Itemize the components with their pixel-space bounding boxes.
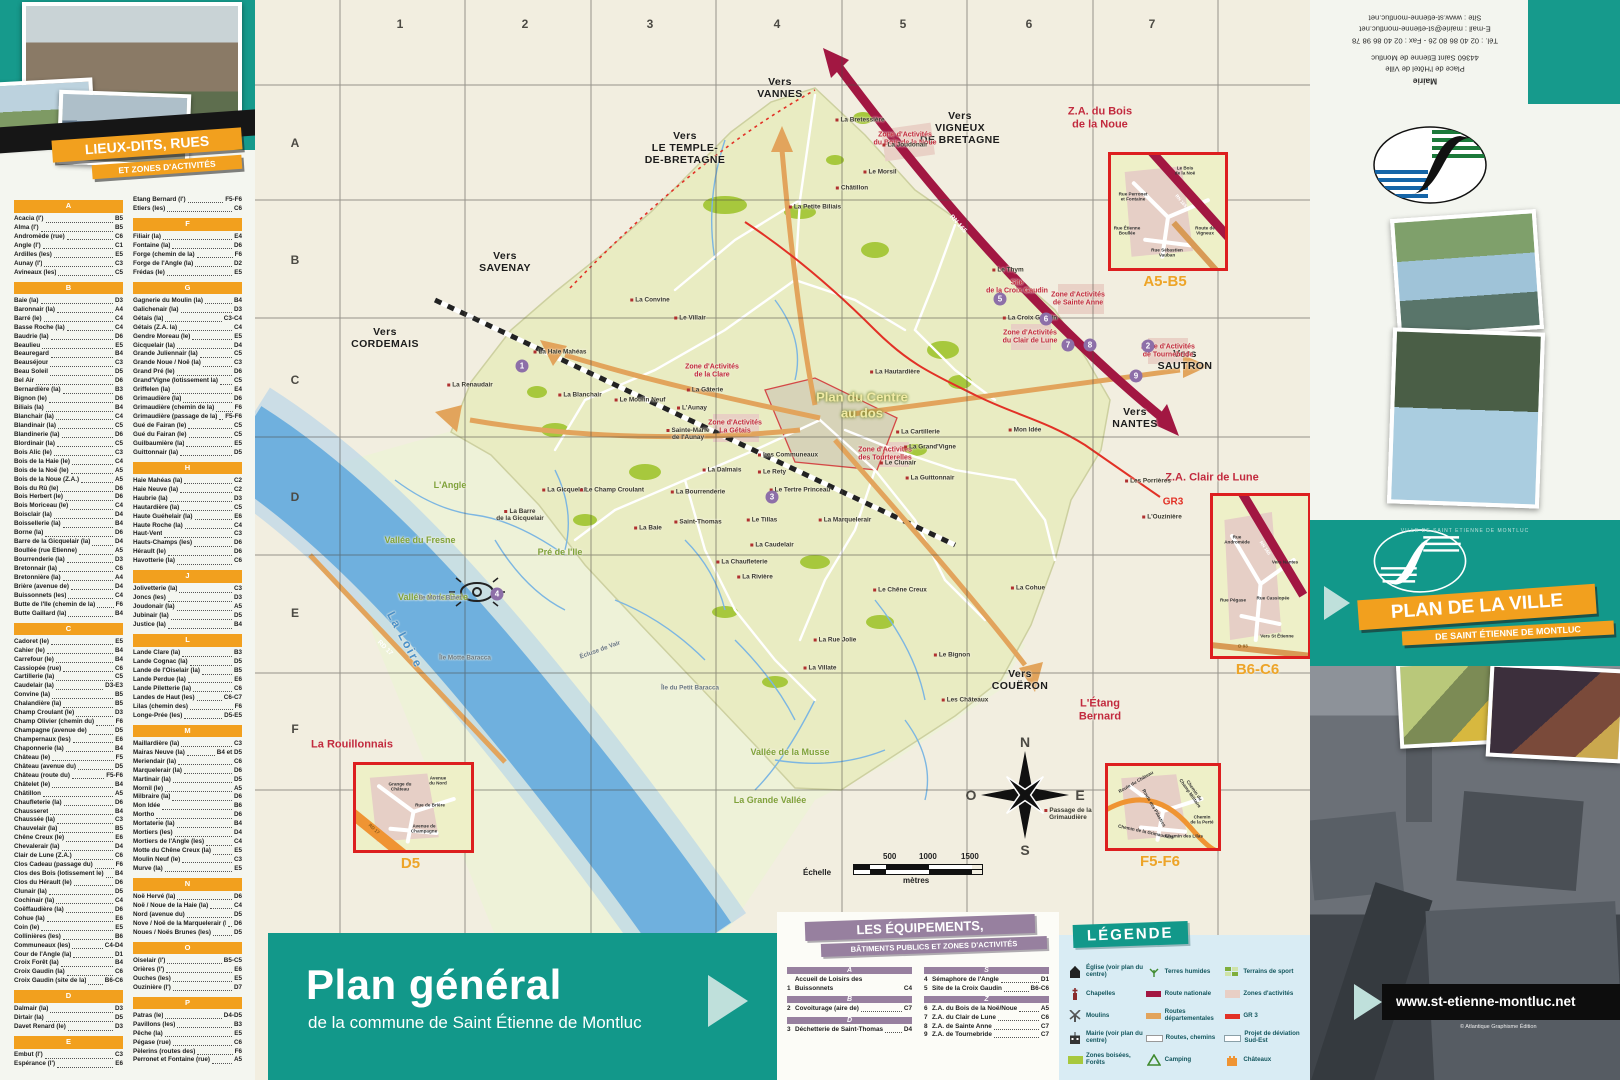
index-entry: Gicquelair (la)D4 (133, 342, 242, 351)
hamlet-label: La Rue Jolie (814, 637, 857, 644)
contact-name: Mairie (1320, 75, 1530, 88)
hamlet-label: Le Tertre Princeau (770, 487, 831, 494)
legende-item: Zones d'activités (1224, 988, 1303, 1000)
hamlet-label: La Haie Mahéas (534, 349, 587, 356)
index-entry: Angle (l')C1 (14, 242, 123, 251)
index-entry: Bel AirD6 (14, 377, 123, 386)
equipement-entry: 4Sémaphore de l'AngleD1 (924, 976, 1049, 985)
index-entry: ChausseretB4 (14, 808, 123, 817)
index-entry: Beau SoleilD5 (14, 368, 123, 377)
index-entry: Chaussée (la)C3 (14, 816, 123, 825)
index-entry: Griffelen (la)E4 (133, 386, 242, 395)
hamlet-label: La Petite Biliais (789, 204, 841, 211)
index-entry: Murve (la)E5 (133, 865, 242, 874)
scale-tick-1500: 1500 (961, 852, 979, 861)
inset-street-label: D 93 (1238, 643, 1248, 648)
index-entry: Château (avenue du)D5 (14, 763, 123, 772)
index-entry: Brière (avenue de)D4 (14, 583, 123, 592)
equipements-section-header: Z (924, 996, 1049, 1003)
index-entry: Étiers (les)C6 (133, 205, 242, 214)
inset-title-label: L'ÉtangBernard (1079, 697, 1121, 722)
inset-title-label: Z.A. du Boisde la Noue (1068, 105, 1132, 130)
index-entry: Pèlerins (routes des)F6 (133, 1048, 242, 1057)
contact-address2: 44360 Saint Etienne de Montluc (1320, 52, 1530, 63)
hamlet-label: La Barrede la Gicquelair (496, 508, 544, 522)
direction-label: VersNANTES (1112, 406, 1158, 430)
index-section-header: L (133, 634, 242, 647)
inset-street-label: Vers St Étienne (1260, 633, 1293, 638)
contact-address1: Place de l'Hôtel de Ville (1320, 64, 1530, 75)
index-entry: Mornil (le)A5 (133, 785, 242, 794)
hamlet-label: La Dalmais (703, 467, 742, 474)
inset-street-label: Avenuedu Nord (429, 776, 447, 787)
index-entry: Lilas (chemin des)F6 (133, 703, 242, 712)
direction-label: VersCORDEMAIS (351, 326, 419, 350)
inset-street-label: Route deVigneux (1195, 226, 1215, 237)
grid-row-label: A (291, 136, 300, 150)
index-entry: Nord (avenue du)D5 (133, 911, 242, 920)
index-entry: Espérance (l')E6 (14, 1060, 123, 1069)
index-entry: Grande Noue / Noë (la)C3 (133, 359, 242, 368)
index-entry: Collinières (les)B6 (14, 933, 123, 942)
index-entry: Clos Cadeau (passage du)F6 (14, 861, 123, 870)
grid-row-label: B (291, 253, 300, 267)
centre-plan-note: Plan du Centreau dos (816, 389, 908, 420)
concert-photo (1486, 666, 1620, 763)
index-entry: Baie (la)D3 (14, 297, 123, 306)
grid-col-label: 5 (900, 17, 907, 31)
index-entry: Cadoret (le)E5 (14, 638, 123, 647)
chapel-icon (1067, 988, 1083, 1000)
equipements-col2: S4Sémaphore de l'AngleD15Site de la Croi… (924, 964, 1049, 1040)
road-number-label: RN 165 (948, 213, 968, 234)
index-entry: Fontaine (la)D6 (133, 242, 242, 251)
zone-activites-label: Zone d'ActivitésLa Gétais (708, 420, 762, 437)
hamlet-label: Le Villair (674, 315, 706, 322)
index-entry: Communeaux (les)C4-D4 (14, 942, 123, 951)
hamlet-label: Mon Idée (1009, 427, 1042, 434)
legende-grid: Église (voir plan du centre)Terres humid… (1067, 961, 1303, 1071)
index-entry: Cassiopée (rue)C6 (14, 665, 123, 674)
direction-label: VersSAVENAY (479, 250, 531, 274)
rn-swatch (1146, 988, 1162, 1000)
inset-street-label: Vers Nantes (1272, 559, 1298, 564)
index-entry: Grande Juliennair (la)C5 (133, 350, 242, 359)
map-labels: 1234567ABCDEFVersVANNESVersLE TEMPLE-DE-… (255, 0, 1310, 935)
index-entry: Barre de la Gicquelair (la)D4 (14, 538, 123, 547)
index-entry: Clos des Bois (lotissement le)B4 (14, 870, 123, 879)
index-entry: Bernardière (la)B3 (14, 386, 123, 395)
title-block: Plan général de la commune de Saint Étie… (268, 933, 777, 1080)
inset-grid-ref: D5 (401, 855, 420, 872)
index-entry: Chevalerair (la)D4 (14, 843, 123, 852)
hamlet-label: Le Rety (758, 469, 786, 476)
hamlet-label: La Villate (804, 665, 837, 672)
legende-item-label: Église (voir plan du centre) (1086, 965, 1146, 979)
hamlet-label: Saint-Thomas (674, 519, 721, 526)
legende-item: Camping (1146, 1054, 1225, 1066)
index-entry: Ouzinière (l')D7 (133, 984, 242, 993)
index-entry: Haie Mahéas (la)C2 (133, 477, 242, 486)
index-section-header: M (133, 725, 242, 738)
inset-street-label: Le Boisde la Noë (1175, 166, 1195, 177)
index-entry: Haubrie (la)D3 (133, 495, 242, 504)
hamlet-label: Le Tillas (747, 517, 777, 524)
index-entry: Haute Roche (la)C4 (133, 522, 242, 531)
inset-street-label: Rue de Brière (415, 802, 445, 807)
index-entry: Oiselair (l')B5-C5 (133, 957, 242, 966)
grid-col-label: 2 (522, 17, 529, 31)
index-entry: Chaponnerie (la)B4 (14, 745, 123, 754)
index-entry: Borne (la)D6 (14, 529, 123, 538)
index-entry: Convine (la)B5 (14, 691, 123, 700)
index-entry: Galichenair (la)D3 (133, 306, 242, 315)
index-entry: Boullée (rue Étienne)A5 (14, 547, 123, 556)
street-index: AAcacia (l')B5Alma (l')B5Andromède (rue)… (14, 196, 242, 1074)
index-entry: Caudelair (la)D3-E3 (14, 682, 123, 691)
inset-street-label: Rue Perronetet Fontaine (1119, 192, 1148, 203)
index-entry: Blandinerie (la)D6 (14, 431, 123, 440)
gr-swatch (1224, 1010, 1240, 1022)
index-entry: Lande Clare (la)B3 (133, 649, 242, 658)
wetland-icon (1146, 966, 1162, 978)
poi-marker: 5 (994, 293, 1007, 306)
equipement-entry: 1Accueil de Loisirs des BuissonnetsC4 (787, 976, 912, 993)
index-entry: Motte du Chêne Creux (la)E5 (133, 847, 242, 856)
index-entry: Avineaux (les)C5 (14, 269, 123, 278)
contact-email: E-mail : mairie@st-etienne-montluc.net (1320, 23, 1530, 34)
index-entry: Guittonnair (la)D5 (133, 449, 242, 458)
index-entry: Butte Gaillard (la)B4 (14, 610, 123, 619)
hamlet-label: Les Porrières (1125, 478, 1171, 485)
index-entry: Mairas Neuve (la)B4 et D5 (133, 749, 242, 758)
legende-title: LÉGENDE (1073, 921, 1188, 948)
index-entry: Cahier (le)B4 (14, 647, 123, 656)
equipement-entry: 6Z.A. du Bois de la Noë/NoueA5 (924, 1005, 1049, 1014)
inset-grid-ref: F5-F6 (1140, 853, 1180, 870)
legende-item-label: Châteaux (1243, 1057, 1271, 1064)
street-index-panel: LIEUX-DITS, RUES ET ZONES D'ACTIVITÉS AA… (0, 0, 255, 1080)
equipement-entry: 3Déchetterie de Saint-ThomasD4 (787, 1026, 912, 1035)
index-entry: Champernaux (les)E6 (14, 736, 123, 745)
index-entry: Gendre Moreau (le)E5 (133, 333, 242, 342)
index-entry: Cochinair (la)C4 (14, 897, 123, 906)
index-entry: Andromède (rue)C6 (14, 233, 123, 242)
title-arrow-icon (708, 975, 748, 1027)
equipements-panel: LES ÉQUIPEMENTS, BÂTIMENTS PUBLICS ET ZO… (777, 912, 1059, 1080)
river-label: La Loire (384, 609, 426, 671)
direction-label: VersCOUËRON (992, 668, 1048, 692)
index-entry: Havotterie (la)C6 (133, 557, 242, 566)
inset-title-label: Z.A. Clair de Lune (1165, 472, 1259, 485)
hamlet-label: La Baie (634, 525, 662, 532)
valley-label: La Grande Vallée (734, 795, 807, 805)
hamlet-label: Passage de laGrimaudière (1044, 807, 1091, 821)
legende-item-label: Moulins (1086, 1013, 1109, 1020)
index-entry: Lande Cognac (la)D5 (133, 658, 242, 667)
index-entry: Ardilles (les)E5 (14, 251, 123, 260)
index-entry: Chauvelair (la)B5 (14, 825, 123, 834)
inset-street-label: Chemin des Lilas (1165, 833, 1203, 838)
index-entry: BeauregardB4 (14, 350, 123, 359)
index-entry: Haut-VentC3 (133, 530, 242, 539)
legende-item: Mairie (voir plan du centre) (1067, 1031, 1146, 1045)
island-label: Île Motte Baracca (439, 655, 491, 662)
index-entry: Baronnair (la)A4 (14, 306, 123, 315)
poi-marker: 1 (516, 360, 529, 373)
river-photo (1390, 209, 1544, 339)
index-section-header: D (14, 990, 123, 1003)
index-entry: Blordinair (la)C5 (14, 440, 123, 449)
legende-item: Terres humides (1146, 966, 1225, 978)
index-entry: Buissonnets (les)C4 (14, 592, 123, 601)
map-leaflet-page: LIEUX-DITS, RUES ET ZONES D'ACTIVITÉS AA… (0, 0, 1620, 1080)
index-entry: Davet Renard (le)D3 (14, 1023, 123, 1032)
index-entry: Mon IdéeB6 (133, 802, 242, 811)
index-entry: Noë / Noue de la Haie (la)C4 (133, 902, 242, 911)
legende-item: Chapelles (1067, 988, 1146, 1000)
index-entry: Chalandière (la)B5 (14, 700, 123, 709)
index-entry: Perronet et Fontaine (rue)A5 (133, 1056, 242, 1065)
church-icon (1067, 966, 1083, 978)
index-entry: Chaufleterie (la)D6 (14, 799, 123, 808)
equipements-banner-line2: BÂTIMENTS PUBLICS ET ZONES D'ACTIVITÉS (850, 939, 1017, 954)
hamlet-label: Le Morsil (863, 169, 896, 176)
index-entry: Bignon (le)D6 (14, 395, 123, 404)
index-entry: Forge (chemin de la)F6 (133, 251, 242, 260)
index-section-header: E (14, 1036, 123, 1049)
legende-item: Route nationale (1146, 988, 1225, 1000)
index-entry: Haie Neuve (la)C2 (133, 486, 242, 495)
hamlet-label: La Marquelerair (819, 517, 872, 524)
index-entry: Croix Forêt (la)B4 (14, 959, 123, 968)
index-entry: Étang Bernard (l')F5-F6 (133, 196, 242, 205)
index-entry: Hauts-Champs (les)D6 (133, 539, 242, 548)
legende-item-label: Routes départementales (1165, 1009, 1225, 1023)
deviation-swatch (1224, 1032, 1241, 1044)
index-entry: Bois de la Haie (le)C4 (14, 458, 123, 467)
rd-swatch (1146, 1010, 1162, 1022)
index-entry: Ouches (les)E5 (133, 975, 242, 984)
index-entry: Justice (la)B4 (133, 621, 242, 630)
map-title: Plan général (306, 961, 777, 1009)
index-entry: Dirtair (la)D5 (14, 1014, 123, 1023)
hamlet-label: Le Chêne Creux (873, 587, 927, 594)
index-section-header: J (133, 570, 242, 583)
valley-label: Vallée du Fresne (384, 535, 455, 545)
inset-street-label: Rue SébastienVauban (1151, 248, 1183, 259)
index-entry: Coin (le)E5 (14, 924, 123, 933)
sport-icon (1224, 966, 1240, 978)
hamlet-label: La Rivière (737, 574, 773, 581)
index-entry: Baudrie (la)D6 (14, 333, 123, 342)
index-entry: Forge de l'Angle (la)D2 (133, 260, 242, 269)
index-entry: Noë Hervé (la)D6 (133, 893, 242, 902)
index-entry: Château (route du)F5-F6 (14, 772, 123, 781)
zone-activites-label: Zone d'Activitésdu Clair de Lune (1003, 330, 1058, 347)
index-entry: Bois Alic (le)C3 (14, 449, 123, 458)
index-entry: Grimaudière (la)D6 (133, 395, 242, 404)
index-entry: Alma (l')B5 (14, 224, 123, 233)
index-entry: Barré (le)C4 (14, 315, 123, 324)
gr3-label: GR3 (1163, 497, 1184, 508)
index-entry: Jolivetterie (la)C3 (133, 585, 242, 594)
poi-marker: 8 (1084, 339, 1097, 352)
index-entry: Mortiers (les)D4 (133, 829, 242, 838)
legende-item-label: Mairie (voir plan du centre) (1086, 1031, 1146, 1045)
grid-row-label: C (291, 373, 300, 387)
equipements-banner-line1: LES ÉQUIPEMENTS, (856, 918, 984, 937)
index-entry: Butte de l'Ile (chemin de la)F6 (14, 601, 123, 610)
index-entry: Champagne (avenue de)D5 (14, 727, 123, 736)
road-number-label: RD 17 (376, 639, 394, 657)
legende-item-label: Zones boisées, Forêts (1086, 1053, 1146, 1067)
index-section-header: A (14, 200, 123, 213)
teal-corner (1528, 0, 1620, 104)
direction-label: VersVANNES (757, 76, 802, 100)
scale-bar-segments (853, 864, 983, 875)
legende-item-label: Camping (1165, 1057, 1191, 1064)
index-entry: MorthoD6 (133, 811, 242, 820)
index-entry: Grand Pré (le)D6 (133, 368, 242, 377)
hamlet-label: La Bourrenderie (671, 489, 725, 496)
index-entry: Bois Moriceau (le)C4 (14, 502, 123, 511)
compass-s: S (1020, 842, 1029, 858)
hamlet-label: Le Bignon (934, 652, 970, 659)
poi-marker: 6 (1040, 313, 1053, 326)
index-section-header: N (133, 878, 242, 891)
index-entry: Pêche (la)E5 (133, 1030, 242, 1039)
grid-col-label: 6 (1026, 17, 1033, 31)
direction-label: VersLE TEMPLE-DE-BRETAGNE (645, 130, 726, 166)
index-entry: Biliais (la)B4 (14, 404, 123, 413)
scale-tick-1000: 1000 (919, 852, 937, 861)
index-entry: Basse Roche (la)C4 (14, 324, 123, 333)
inset-title-label: La Rouillonnais (311, 739, 393, 752)
inset-grid-ref: B6-C6 (1236, 661, 1279, 678)
index-section-header: C (14, 623, 123, 636)
town-photo-collage: www.st-etienne-montluc.net © Atlantique … (1310, 666, 1620, 1080)
inset-grid-ref: A5-B5 (1143, 273, 1186, 290)
compass-o: O (966, 787, 977, 803)
index-entry: Cohue (la)E6 (14, 915, 123, 924)
legende-item-label: Route nationale (1165, 991, 1211, 998)
index-entry: Lande Perdue (la)E6 (133, 676, 242, 685)
index-entry: Gué du Fairan (le)C5 (133, 431, 242, 440)
index-section-header: B (14, 282, 123, 295)
hamlet-label: La Bretessière (835, 117, 884, 124)
index-entry: Bretonnière (la)A4 (14, 574, 123, 583)
hamlet-label: La Grand'Vigne (904, 444, 956, 451)
index-entry: Frédas (le)E5 (133, 269, 242, 278)
grid-row-label: E (291, 606, 299, 620)
chateau-icon (1224, 1054, 1240, 1066)
legende-item-label: Chapelles (1086, 991, 1115, 998)
index-entry: Blanchair (la)C4 (14, 413, 123, 422)
index-entry: Lande de l'Oiselair (la)B5 (133, 667, 242, 676)
zone-activites-label: Zone d'Activitésde la Clare (685, 364, 739, 381)
index-entry: Bois du Rû (le)D6 (14, 485, 123, 494)
legende-item: Routes, chemins (1146, 1032, 1225, 1044)
index-entry: Maillardière (la)C3 (133, 740, 242, 749)
hamlet-label: Le Moulin Neuf (615, 397, 666, 404)
compass-e: E (1075, 787, 1084, 803)
index-entry: Cour de l'Angle (la)D1 (14, 951, 123, 960)
index-entry: Chêne Creux (le)E6 (14, 834, 123, 843)
legende-item: Moulins (1067, 1010, 1146, 1022)
hamlet-label: La Gâterie (687, 387, 723, 394)
grid-row-label: D (291, 490, 300, 504)
index-entry: Marquelerair (la)D6 (133, 767, 242, 776)
logo-caption: VILLE DE SAINT ETIENNE DE MONTLUC (1310, 528, 1620, 534)
hamlet-label: La Blanchair (558, 392, 601, 399)
index-entry: Aunay (l')C3 (14, 260, 123, 269)
inset-street-label: Grange duChâteau (389, 782, 412, 793)
hamlet-label: Les Châteaux (942, 697, 989, 704)
legende-item: Châteaux (1224, 1054, 1303, 1066)
index-entry: BeauséjourC3 (14, 359, 123, 368)
index-entry: Meriendair (la)C6 (133, 758, 242, 767)
index-entry: Nove / Noë de la Marquelerair (la)D6 (133, 920, 242, 929)
legende-item-label: Projet de déviation Sud-Est (1244, 1031, 1303, 1045)
index-entry: Gétais (Z.A. la)C4 (133, 324, 242, 333)
island-label: Écluse de Vair (579, 639, 622, 660)
zone-activites-label: Zone d'Activitésde Sainte Anne (1051, 292, 1105, 309)
index-entry: Jubinair (la)D5 (133, 612, 242, 621)
index-entry: Croix Gaudin (la)C6 (14, 968, 123, 977)
index-entry: Orières (l')E6 (133, 966, 242, 975)
index-entry: Milbraire (la)D6 (133, 793, 242, 802)
website-link[interactable]: www.st-etienne-montluc.net (1382, 984, 1620, 1020)
grid-col-label: 3 (647, 17, 654, 31)
index-entry: Carrefour (le)B4 (14, 656, 123, 665)
index-entry: Boisclair (la)D4 (14, 511, 123, 520)
grid-col-label: 4 (774, 17, 781, 31)
index-entry: Gagnerie du Moulin (la)B4 (133, 297, 242, 306)
legende-item: Routes départementales (1146, 1009, 1225, 1023)
hamlet-label: La Convine (630, 297, 669, 304)
valley-label: Vallée de la Musse (750, 747, 829, 757)
legende-item-label: Terres humides (1165, 969, 1211, 976)
inset-street-label: Rue Cassiopée (1257, 595, 1290, 600)
hamlet-label: La Joudonair (882, 142, 927, 149)
index-entry: Châtelet (le)B4 (14, 781, 123, 790)
za-swatch (1224, 988, 1240, 1000)
legende-item: Zones boisées, Forêts (1067, 1053, 1146, 1067)
inset-street-label: RueAndromède (1224, 535, 1250, 546)
equipements-section-header: B (787, 996, 912, 1003)
index-entry: Pavillons (les)B3 (133, 1021, 242, 1030)
index-entry: Boissellerie (la)B4 (14, 520, 123, 529)
equipements-section-header: A (787, 967, 912, 974)
index-entry: Joncs (les)D3 (133, 594, 242, 603)
plan-ville-arrow-icon (1324, 586, 1350, 620)
index-entry: Bois Herbert (le)D6 (14, 493, 123, 502)
hamlet-label: La Renaudair (447, 382, 493, 389)
hamlet-label: La Guittonnair (906, 475, 955, 482)
index-entry: Patras (le)D4-D5 (133, 1012, 242, 1021)
hamlet-label: L'Ouzinière (1142, 514, 1182, 521)
inset-box-B6-C6: RN 165RueAndromèdeVers NantesRue PégaseR… (1210, 493, 1310, 659)
legende-item: Terrains de sport (1224, 966, 1303, 978)
grid-col-label: 1 (397, 17, 404, 31)
inset-street-label: Avenue deChampagne (411, 824, 437, 835)
equipement-entry: 7Z.A. du Clair de LuneC6 (924, 1014, 1049, 1023)
index-entry: Longe-Prée (les)D5-E5 (133, 712, 242, 721)
right-panel: Mairie Place de l'Hôtel de Ville 44360 S… (1310, 0, 1620, 1080)
valley-label: L'Angle (434, 480, 467, 490)
hamlet-label: La Hautardière (870, 369, 920, 376)
